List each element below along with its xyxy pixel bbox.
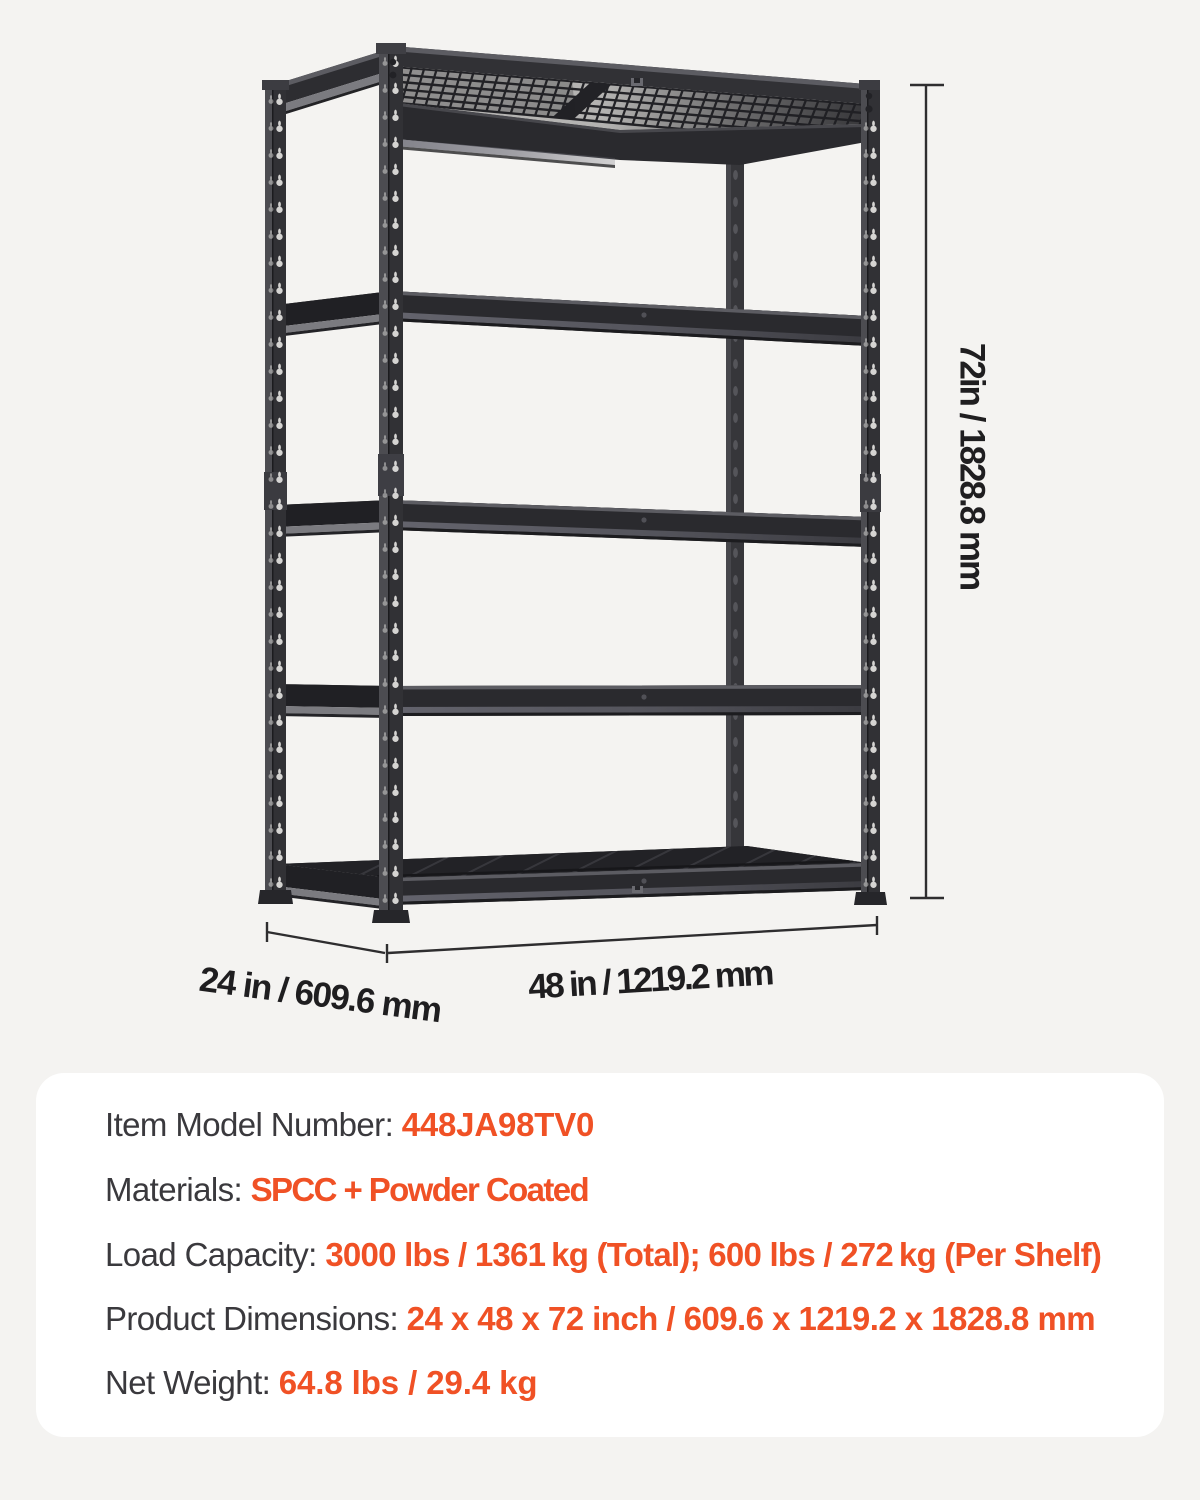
- svg-text:24 in / 609.6 mm: 24 in / 609.6 mm: [197, 960, 443, 1030]
- svg-text:48 in / 1219.2 mm: 48 in / 1219.2 mm: [527, 953, 773, 1006]
- svg-text:72in / 1828.8 mm: 72in / 1828.8 mm: [953, 343, 992, 589]
